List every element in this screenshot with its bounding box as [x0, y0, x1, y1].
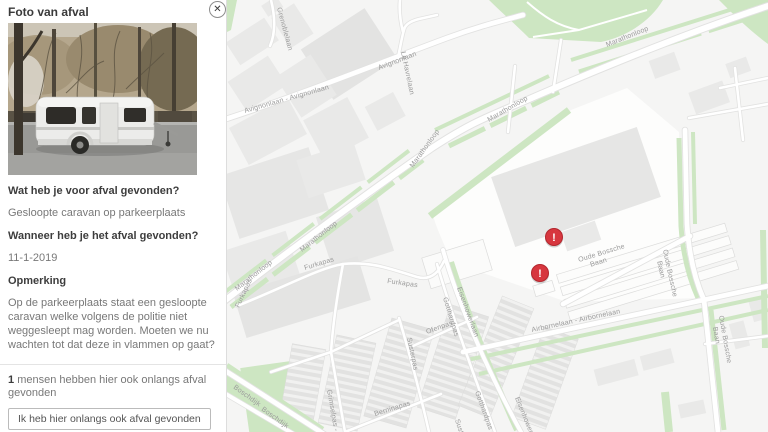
exclamation-icon: !	[538, 268, 542, 280]
report-also-found-button[interactable]: Ik heb hier onlangs ook afval gevonden	[8, 408, 211, 430]
question-remark: Opmerking	[8, 275, 217, 288]
close-button[interactable]: ✕	[209, 1, 226, 18]
waste-marker[interactable]: !	[545, 229, 563, 248]
report-panel: Foto van afval ✕	[0, 0, 227, 432]
question-what: Wat heb je voor afval gevonden?	[8, 185, 217, 198]
exclamation-icon: !	[552, 232, 556, 244]
waste-report-app: Foto van afval ✕	[0, 0, 768, 432]
question-when: Wanneer heb je het afval gevonden?	[8, 230, 217, 243]
also-found-count: 1 mensen hebben hier ook onlangs afval g…	[8, 374, 217, 400]
waste-marker[interactable]: !	[531, 265, 549, 284]
count-number: 1	[8, 374, 14, 386]
map-canvas: MarathonloopMarathonloopMarathonloopMara…	[227, 0, 768, 432]
map[interactable]: MarathonloopMarathonloopMarathonloopMara…	[227, 0, 768, 432]
divider	[0, 364, 226, 365]
answer-what: Gesloopte caravan op parkeerplaats	[8, 206, 217, 220]
answer-remark: Op de parkeerplaats staat een gesloopte …	[8, 296, 217, 352]
waste-photo	[8, 23, 197, 175]
answer-when: 11-1-2019	[8, 251, 217, 265]
panel-title: Foto van afval	[8, 5, 217, 20]
close-icon: ✕	[213, 4, 221, 15]
count-text: mensen hebben hier ook onlangs afval gev…	[8, 374, 206, 399]
